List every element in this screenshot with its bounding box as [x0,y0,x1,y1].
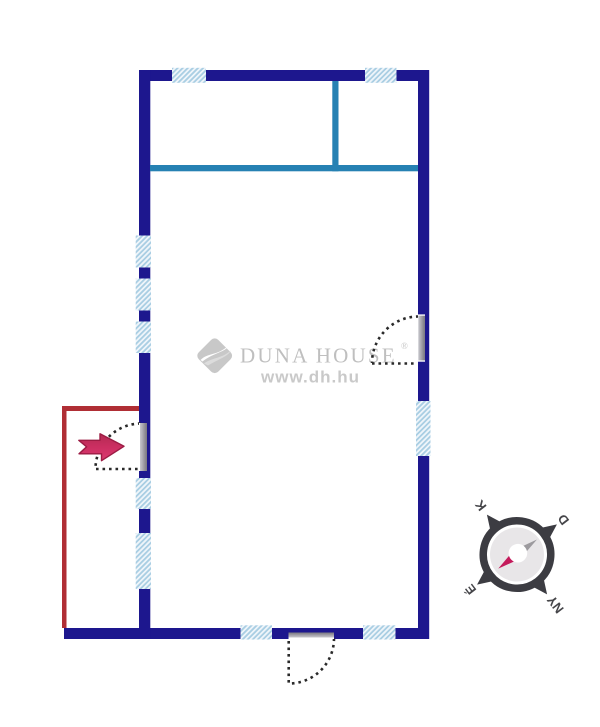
svg-text:www.dh.hu: www.dh.hu [260,368,360,387]
svg-text:®: ® [401,341,408,351]
